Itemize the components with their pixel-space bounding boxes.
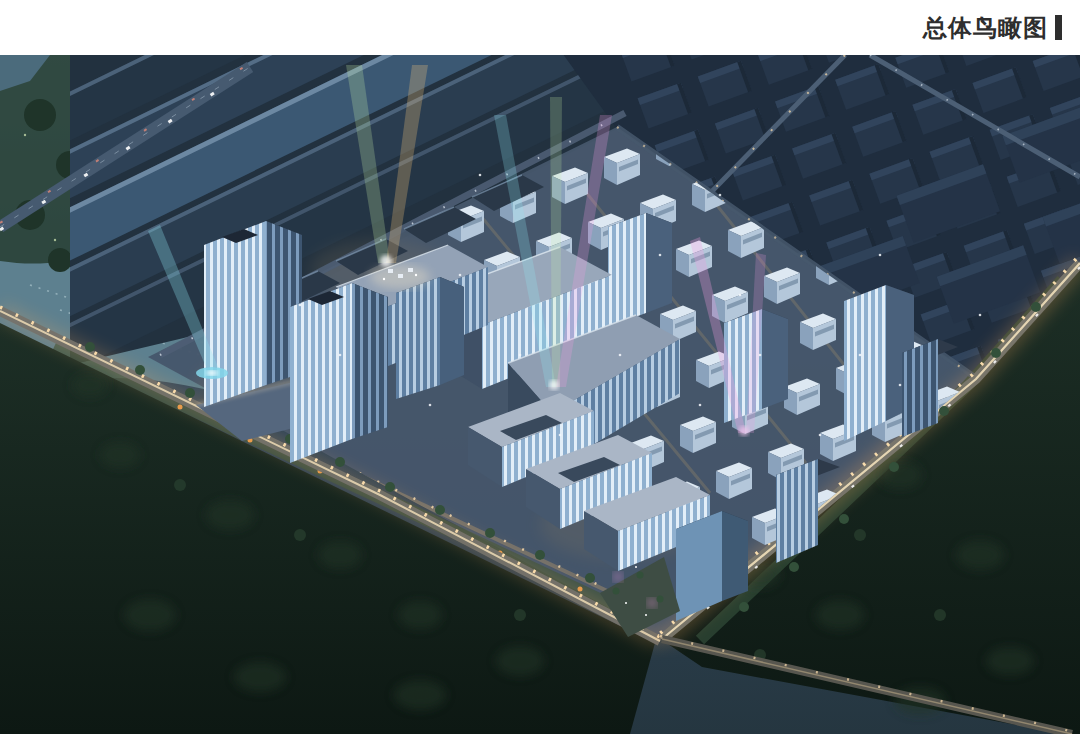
title-accent-bar (1055, 15, 1062, 40)
slide-header: 总体鸟瞰图 (0, 0, 1080, 55)
aerial-rendering (0, 55, 1080, 734)
presentation-slide: 总体鸟瞰图 (0, 0, 1080, 734)
event-plaza (370, 265, 430, 289)
aerial-rendering-svg (0, 55, 1080, 734)
page-title: 总体鸟瞰图 (923, 16, 1048, 40)
